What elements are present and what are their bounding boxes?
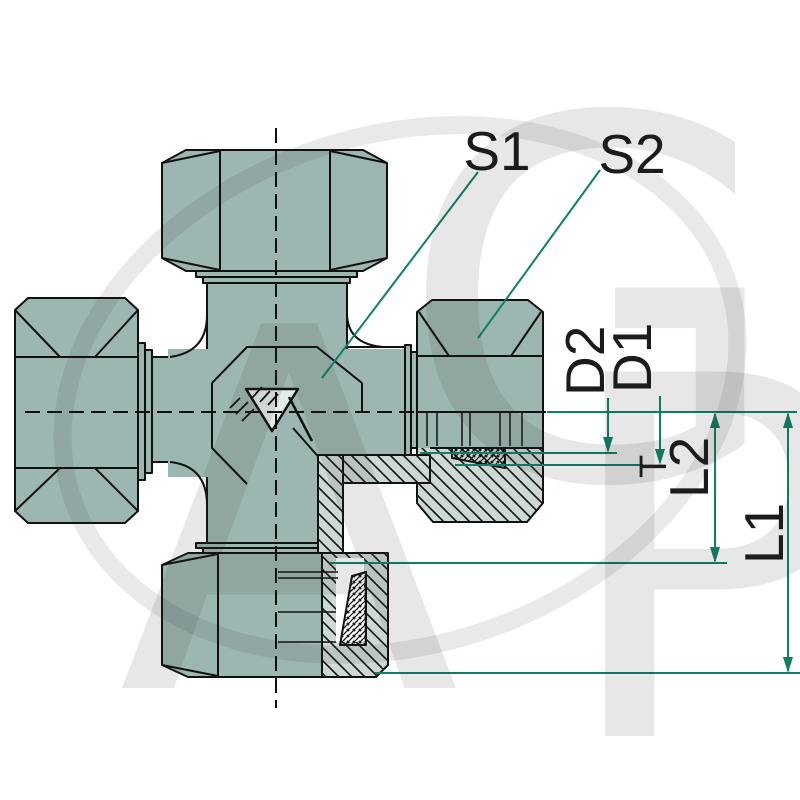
agp-watermark: A G P xyxy=(0,14,800,800)
fitting-diagram: S1 S2 D2 D1 T L2 L1 A G P xyxy=(0,0,800,800)
watermark-letter-p: P xyxy=(556,272,800,800)
technical-drawing-page: S1 S2 D2 D1 T L2 L1 A G P xyxy=(0,0,800,800)
